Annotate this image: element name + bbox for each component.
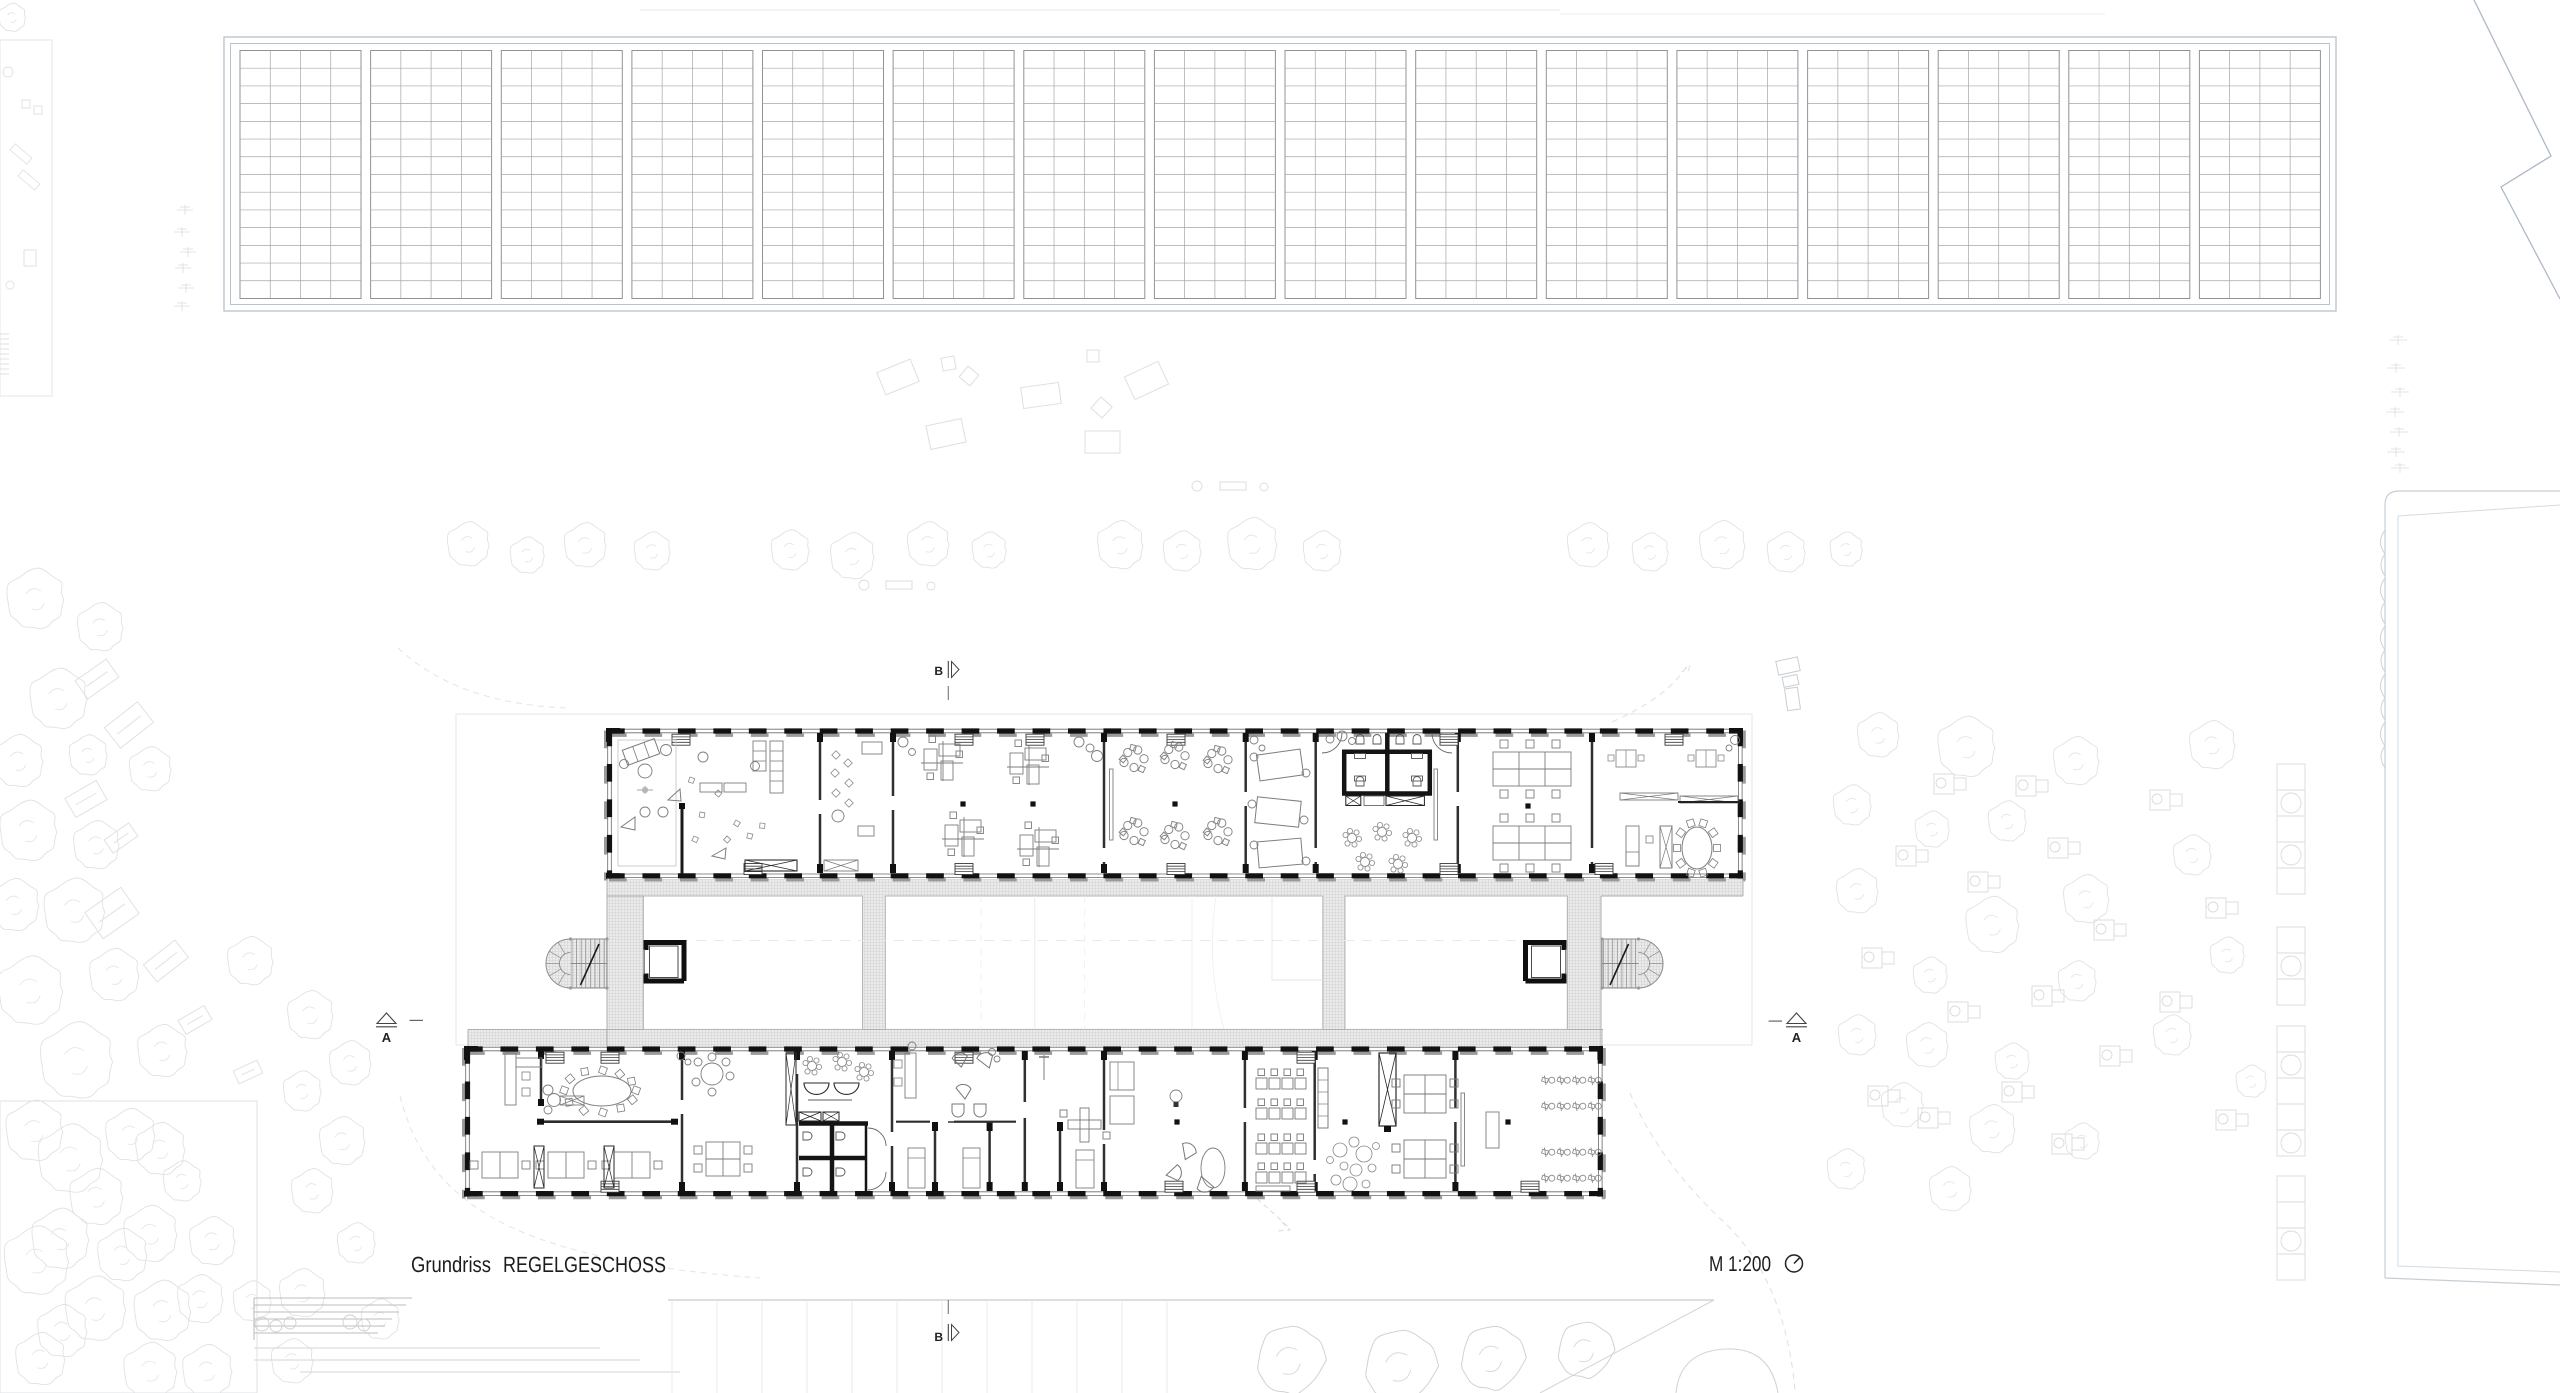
- svg-text:M 1:200: M 1:200: [1709, 1252, 1771, 1276]
- svg-text:Grundriss: Grundriss: [411, 1252, 491, 1277]
- svg-text:A: A: [382, 1030, 392, 1045]
- svg-text:A: A: [1792, 1030, 1802, 1045]
- svg-text:B: B: [934, 1330, 943, 1344]
- svg-text:REGELGESCHOSS: REGELGESCHOSS: [503, 1252, 666, 1277]
- svg-text:B: B: [934, 664, 943, 678]
